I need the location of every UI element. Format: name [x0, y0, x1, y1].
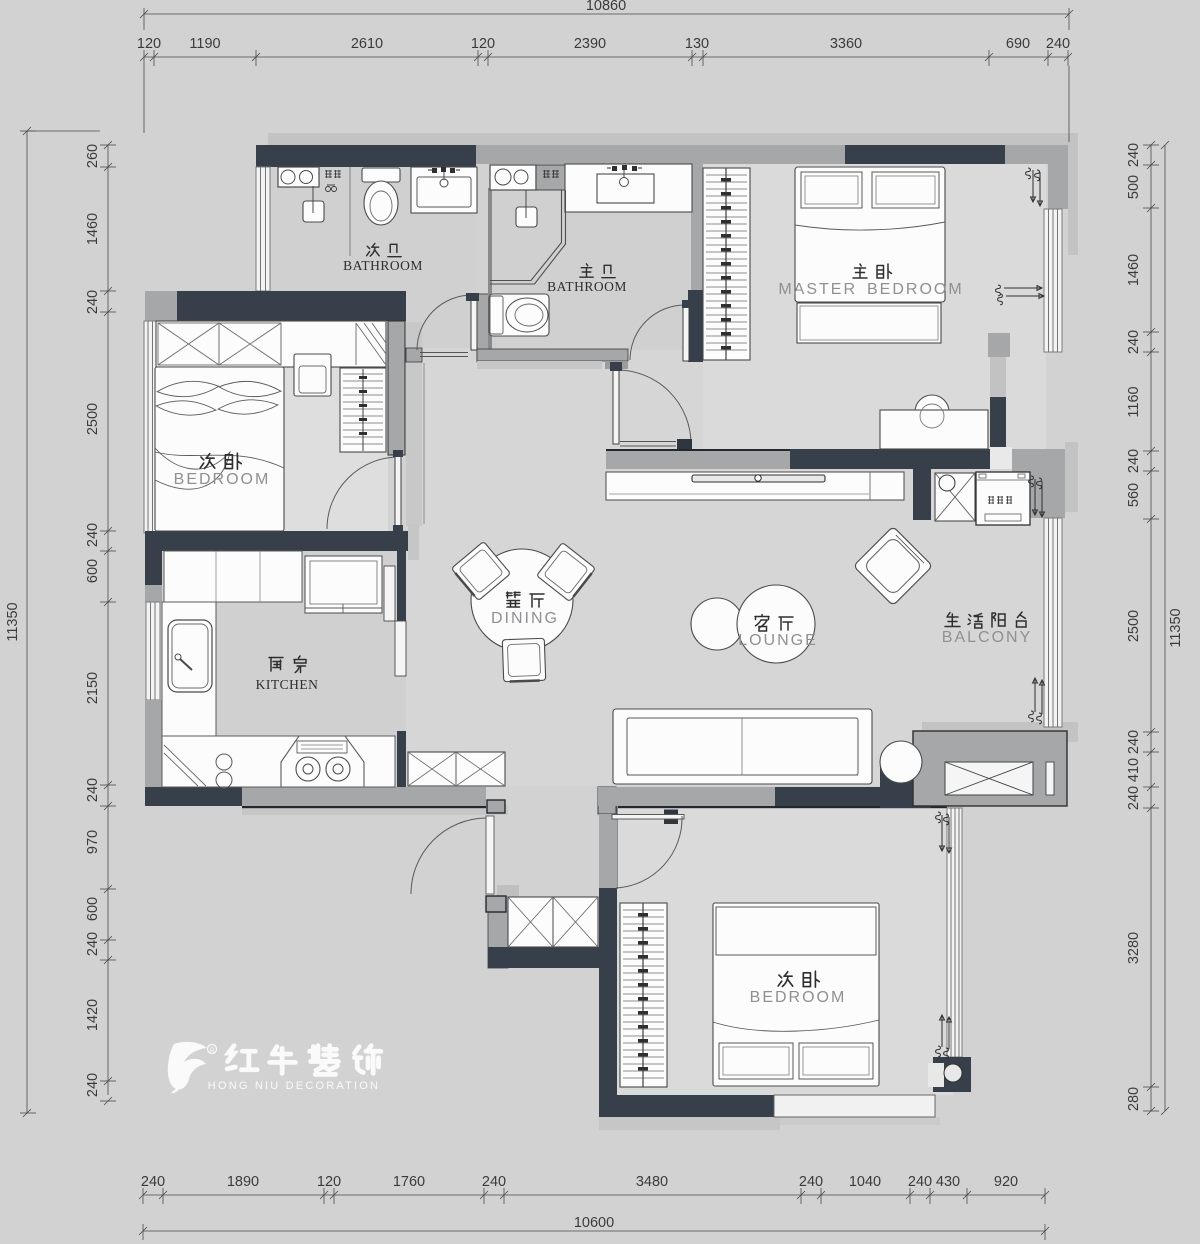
svg-text:10860: 10860	[586, 0, 626, 14]
svg-text:260: 260	[85, 144, 101, 168]
svg-text:120: 120	[137, 36, 161, 52]
svg-text:240: 240	[1126, 449, 1142, 473]
svg-text:560: 560	[1126, 483, 1142, 507]
svg-text:BATHROOM: BATHROOM	[343, 258, 423, 273]
svg-text:280: 280	[1126, 1087, 1142, 1111]
svg-text:11350: 11350	[1168, 608, 1184, 647]
svg-text:1160: 1160	[1126, 386, 1142, 417]
svg-text:2500: 2500	[85, 403, 101, 435]
svg-text:R: R	[209, 1048, 214, 1055]
svg-text:2500: 2500	[1126, 610, 1142, 642]
svg-text:970: 970	[85, 830, 101, 854]
svg-text:3480: 3480	[636, 1174, 668, 1190]
svg-text:BEDROOM: BEDROOM	[174, 471, 271, 488]
svg-text:1890: 1890	[227, 1174, 259, 1190]
svg-text:240: 240	[1126, 730, 1142, 754]
svg-text:2610: 2610	[351, 36, 383, 52]
svg-text:2150: 2150	[85, 672, 101, 704]
svg-text:2390: 2390	[574, 36, 606, 52]
svg-text:1420: 1420	[85, 999, 101, 1031]
svg-text:600: 600	[85, 559, 101, 583]
svg-text:120: 120	[471, 36, 495, 52]
svg-text:DINING: DINING	[491, 610, 559, 627]
svg-text:1460: 1460	[1126, 254, 1142, 286]
svg-text:430: 430	[936, 1174, 960, 1190]
svg-text:240: 240	[1046, 36, 1070, 52]
svg-text:240: 240	[1126, 143, 1142, 167]
svg-text:240: 240	[85, 290, 101, 314]
svg-text:3280: 3280	[1126, 932, 1142, 964]
svg-text:KITCHEN: KITCHEN	[256, 677, 319, 692]
svg-text:240: 240	[85, 1073, 101, 1097]
svg-text:HONG NIU DECORATION: HONG NIU DECORATION	[208, 1080, 380, 1092]
svg-text:LOUNGE: LOUNGE	[738, 632, 818, 649]
svg-text:240: 240	[1126, 330, 1142, 354]
svg-text:240: 240	[85, 932, 101, 956]
svg-text:11350: 11350	[5, 602, 21, 641]
svg-text:3360: 3360	[830, 36, 862, 52]
svg-text:240: 240	[141, 1174, 165, 1190]
svg-text:240: 240	[799, 1174, 823, 1190]
svg-text:240: 240	[85, 523, 101, 547]
svg-text:10600: 10600	[574, 1215, 614, 1231]
svg-text:1040: 1040	[849, 1174, 881, 1190]
svg-text:500: 500	[1126, 175, 1142, 199]
svg-text:240: 240	[908, 1174, 932, 1190]
svg-text:1190: 1190	[189, 36, 220, 52]
svg-text:BALCONY: BALCONY	[942, 629, 1032, 646]
svg-text:690: 690	[1006, 36, 1030, 52]
svg-text:1760: 1760	[393, 1174, 425, 1190]
svg-text:240: 240	[1126, 786, 1142, 810]
svg-text:MASTER BEDROOM: MASTER BEDROOM	[778, 281, 963, 298]
svg-text:BATHROOM: BATHROOM	[547, 279, 627, 294]
svg-text:920: 920	[994, 1174, 1018, 1190]
svg-text:240: 240	[482, 1174, 506, 1190]
svg-text:240: 240	[85, 778, 101, 802]
svg-text:600: 600	[85, 897, 101, 921]
svg-text:BEDROOM: BEDROOM	[750, 989, 847, 1006]
svg-text:130: 130	[685, 36, 709, 52]
svg-text:120: 120	[317, 1174, 341, 1190]
svg-text:410: 410	[1126, 758, 1142, 782]
svg-text:1460: 1460	[85, 213, 101, 245]
